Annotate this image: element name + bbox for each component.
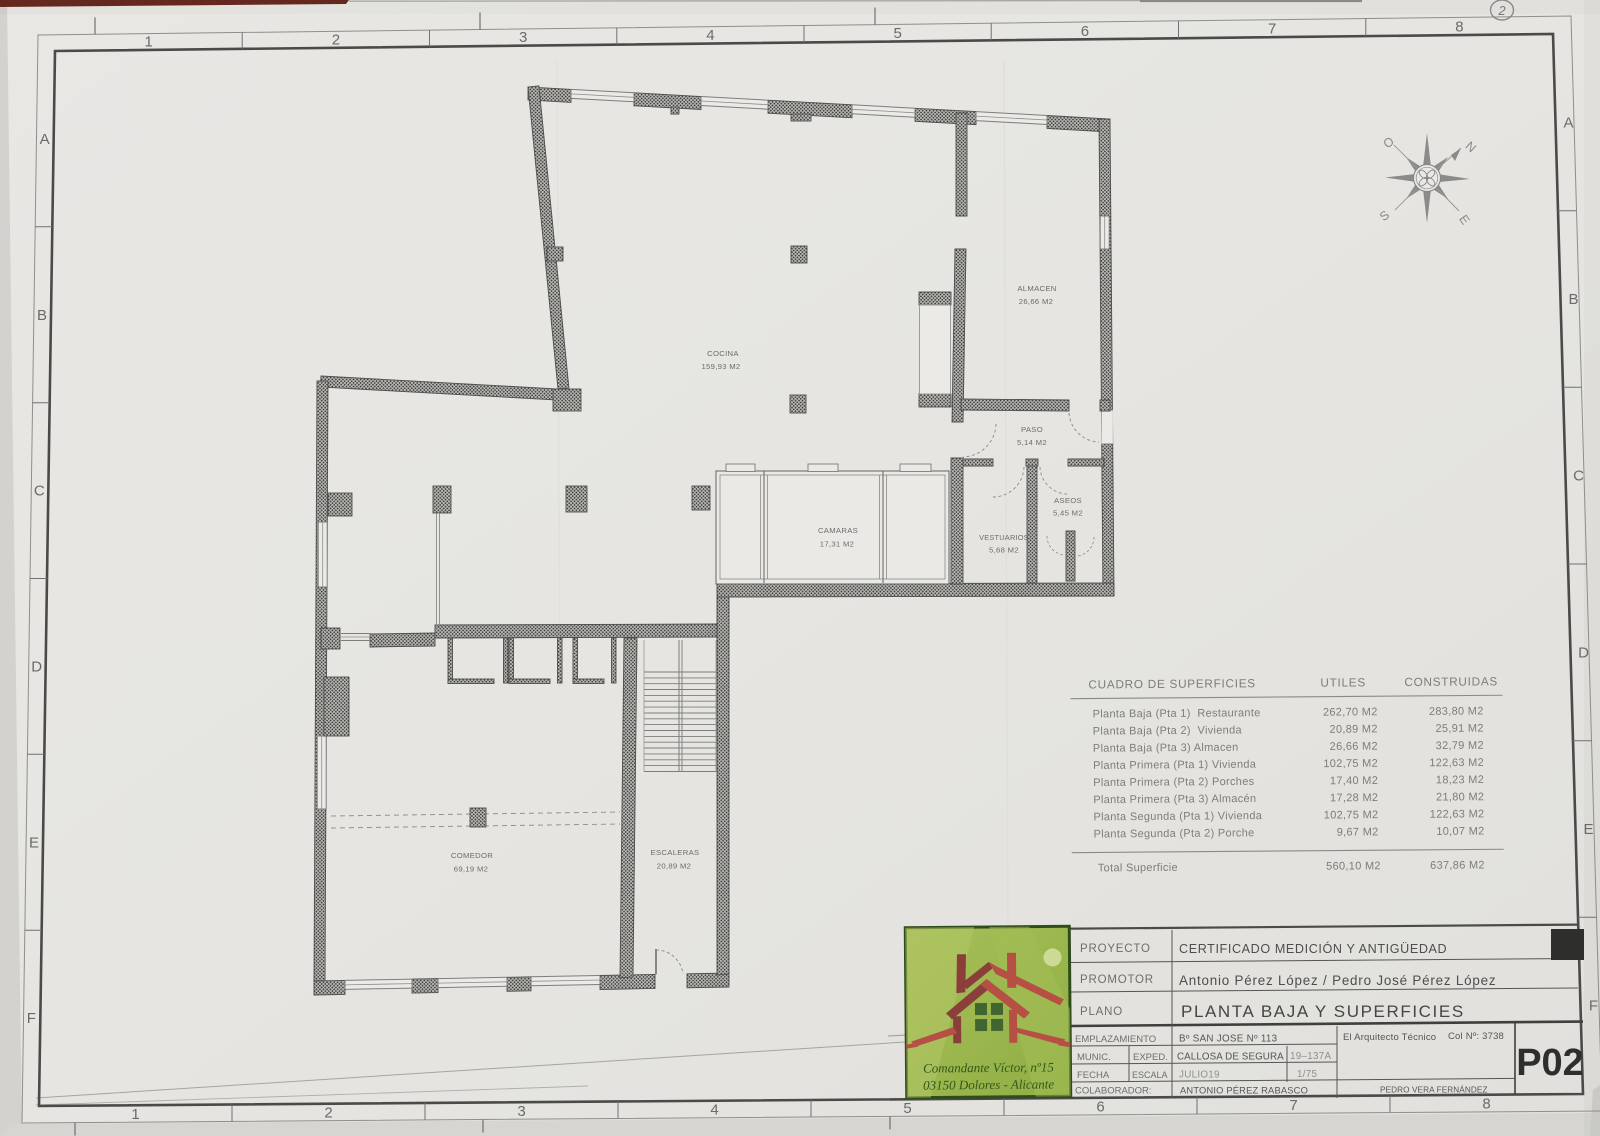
svg-text:637,86 M2: 637,86 M2 — [1430, 859, 1485, 871]
svg-text:Antonio Pérez López / Pedro Jo: Antonio Pérez López / Pedro José Pérez L… — [1179, 973, 1496, 988]
svg-text:21,80 M2: 21,80 M2 — [1436, 791, 1484, 803]
svg-text:Comandante Víctor, nº15: Comandante Víctor, nº15 — [923, 1059, 1054, 1075]
svg-text:Bº SAN JOSE Nº 113: Bº SAN JOSE Nº 113 — [1179, 1034, 1278, 1045]
svg-text:CALLOSA DE SEGURA: CALLOSA DE SEGURA — [1177, 1052, 1284, 1063]
svg-text:EMPLAZAMIENTO: EMPLAZAMIENTO — [1075, 1034, 1156, 1045]
svg-text:102,75 M2: 102,75 M2 — [1323, 758, 1378, 770]
svg-text:1: 1 — [144, 33, 152, 50]
svg-text:2: 2 — [1497, 3, 1506, 18]
svg-text:9,67 M2: 9,67 M2 — [1337, 826, 1379, 838]
svg-text:F: F — [1589, 998, 1598, 1015]
svg-text:D: D — [1578, 644, 1589, 661]
svg-text:COLABORADOR:: COLABORADOR: — [1075, 1086, 1152, 1097]
svg-text:El Arquitecto Técnico: El Arquitecto Técnico — [1343, 1032, 1436, 1043]
svg-text:Planta Baja (Pta 3) Almacen: Planta Baja (Pta 3) Almacen — [1093, 742, 1239, 755]
svg-text:FECHA: FECHA — [1077, 1070, 1110, 1081]
svg-text:C: C — [1573, 468, 1584, 485]
svg-text:ANTONIO PÉREZ RABASCO: ANTONIO PÉREZ RABASCO — [1180, 1086, 1308, 1096]
svg-text:E: E — [1583, 821, 1593, 838]
svg-text:03150 Dolores - Alicante: 03150 Dolores - Alicante — [923, 1076, 1054, 1092]
svg-text:7: 7 — [1268, 21, 1276, 38]
svg-text:5,45 M2: 5,45 M2 — [1053, 509, 1083, 518]
svg-text:283,80 M2: 283,80 M2 — [1429, 705, 1484, 717]
svg-text:10,07 M2: 10,07 M2 — [1436, 825, 1484, 837]
svg-text:CERTIFICADO MEDICIÓN Y ANTIGÜE: CERTIFICADO MEDICIÓN Y ANTIGÜEDAD — [1179, 941, 1447, 956]
svg-text:4: 4 — [710, 1101, 718, 1118]
svg-text:2: 2 — [324, 1104, 332, 1121]
svg-text:CUADRO DE SUPERFICIES: CUADRO DE SUPERFICIES — [1088, 676, 1256, 691]
svg-text:PLANTA BAJA Y SUPERFICIES: PLANTA BAJA Y SUPERFICIES — [1181, 1002, 1465, 1021]
svg-text:17,31 M2: 17,31 M2 — [820, 540, 854, 549]
svg-text:5,14 M2: 5,14 M2 — [1017, 438, 1047, 447]
svg-text:3: 3 — [519, 29, 527, 46]
svg-text:F: F — [27, 1010, 36, 1027]
svg-text:3: 3 — [517, 1103, 525, 1120]
svg-text:17,28 M2: 17,28 M2 — [1330, 792, 1378, 804]
svg-text:26,66 M2: 26,66 M2 — [1330, 741, 1378, 753]
svg-text:19–137A: 19–137A — [1290, 1051, 1331, 1062]
svg-text:ASEOS: ASEOS — [1054, 496, 1082, 505]
svg-text:CONSTRUIDAS: CONSTRUIDAS — [1404, 674, 1498, 689]
svg-text:18,23 M2: 18,23 M2 — [1436, 774, 1484, 786]
svg-text:122,63 M2: 122,63 M2 — [1430, 808, 1485, 820]
svg-text:17,40 M2: 17,40 M2 — [1330, 775, 1378, 787]
svg-text:PROMOTOR: PROMOTOR — [1080, 974, 1154, 986]
svg-text:E: E — [29, 834, 39, 851]
svg-text:69,19 M2: 69,19 M2 — [454, 865, 488, 874]
svg-text:UTILES: UTILES — [1320, 675, 1366, 689]
svg-text:P02: P02 — [1516, 1042, 1584, 1084]
svg-text:25,91 M2: 25,91 M2 — [1435, 723, 1483, 735]
svg-text:Planta Baja (Pta 2) Vivienda: Planta Baja (Pta 2) Vivienda — [1093, 724, 1243, 737]
svg-text:A: A — [1563, 114, 1573, 131]
svg-text:7: 7 — [1289, 1097, 1297, 1114]
svg-text:2: 2 — [332, 31, 340, 48]
svg-text:122,63 M2: 122,63 M2 — [1429, 757, 1484, 769]
svg-text:159,93 M2: 159,93 M2 — [701, 362, 740, 371]
svg-text:B: B — [1568, 291, 1578, 308]
svg-text:20,89 M2: 20,89 M2 — [657, 862, 691, 871]
svg-text:PROYECTO: PROYECTO — [1080, 943, 1151, 955]
svg-text:ESCALA: ESCALA — [1132, 1070, 1168, 1080]
svg-text:ESCALERAS: ESCALERAS — [651, 848, 700, 857]
svg-text:Planta Primera (Pta 1) Viviend: Planta Primera (Pta 1) Vivienda — [1093, 759, 1257, 772]
svg-text:26,66 M2: 26,66 M2 — [1019, 297, 1053, 306]
svg-text:Total Superficie: Total Superficie — [1098, 862, 1178, 875]
svg-text:VESTUARIOS: VESTUARIOS — [979, 533, 1029, 542]
svg-text:MUNIC.: MUNIC. — [1077, 1052, 1111, 1063]
svg-text:Planta Segunda (Pta 2) Porche: Planta Segunda (Pta 2) Porche — [1094, 827, 1255, 840]
svg-text:4: 4 — [706, 27, 714, 44]
svg-text:Planta Primera (Pta 2) Porches: Planta Primera (Pta 2) Porches — [1093, 776, 1255, 789]
svg-text:20,89 M2: 20,89 M2 — [1329, 723, 1377, 735]
svg-text:CAMARAS: CAMARAS — [818, 526, 858, 535]
svg-text:8: 8 — [1455, 19, 1463, 36]
svg-text:8: 8 — [1482, 1095, 1490, 1112]
svg-text:5: 5 — [893, 25, 901, 42]
svg-text:6: 6 — [1081, 23, 1089, 40]
svg-text:PEDRO VERA FERNÁNDEZ: PEDRO VERA FERNÁNDEZ — [1380, 1085, 1488, 1095]
svg-text:Col Nº: 3738: Col Nº: 3738 — [1448, 1031, 1504, 1042]
svg-text:5,68 M2: 5,68 M2 — [989, 546, 1019, 555]
svg-text:ALMACEN: ALMACEN — [1017, 284, 1056, 293]
svg-text:EXPED.: EXPED. — [1133, 1052, 1168, 1063]
svg-text:PASO: PASO — [1021, 425, 1043, 434]
svg-text:560,10 M2: 560,10 M2 — [1326, 860, 1381, 872]
svg-text:262,70 M2: 262,70 M2 — [1323, 706, 1378, 718]
svg-text:5: 5 — [903, 1100, 911, 1117]
svg-text:32,79 M2: 32,79 M2 — [1436, 740, 1484, 752]
svg-text:102,75 M2: 102,75 M2 — [1324, 809, 1379, 821]
svg-text:C: C — [34, 483, 45, 500]
svg-text:1/75: 1/75 — [1297, 1069, 1318, 1080]
svg-text:1: 1 — [131, 1106, 139, 1123]
svg-text:Planta Primera (Pta 3) Almacén: Planta Primera (Pta 3) Almacén — [1093, 793, 1256, 806]
svg-text:JULIO19: JULIO19 — [1179, 1070, 1220, 1081]
svg-text:PLANO: PLANO — [1080, 1006, 1123, 1018]
svg-text:COMEDOR: COMEDOR — [451, 851, 493, 860]
svg-text:Planta Baja (Pta 1) Restauran: Planta Baja (Pta 1) Restaurante — [1093, 707, 1261, 720]
svg-text:A: A — [40, 131, 50, 148]
svg-text:B: B — [37, 307, 47, 324]
svg-text:Planta Segunda (Pta 1) Viviend: Planta Segunda (Pta 1) Vivienda — [1093, 810, 1262, 823]
svg-text:6: 6 — [1096, 1098, 1104, 1115]
svg-text:COCINA: COCINA — [707, 349, 739, 358]
svg-text:D: D — [31, 658, 42, 675]
